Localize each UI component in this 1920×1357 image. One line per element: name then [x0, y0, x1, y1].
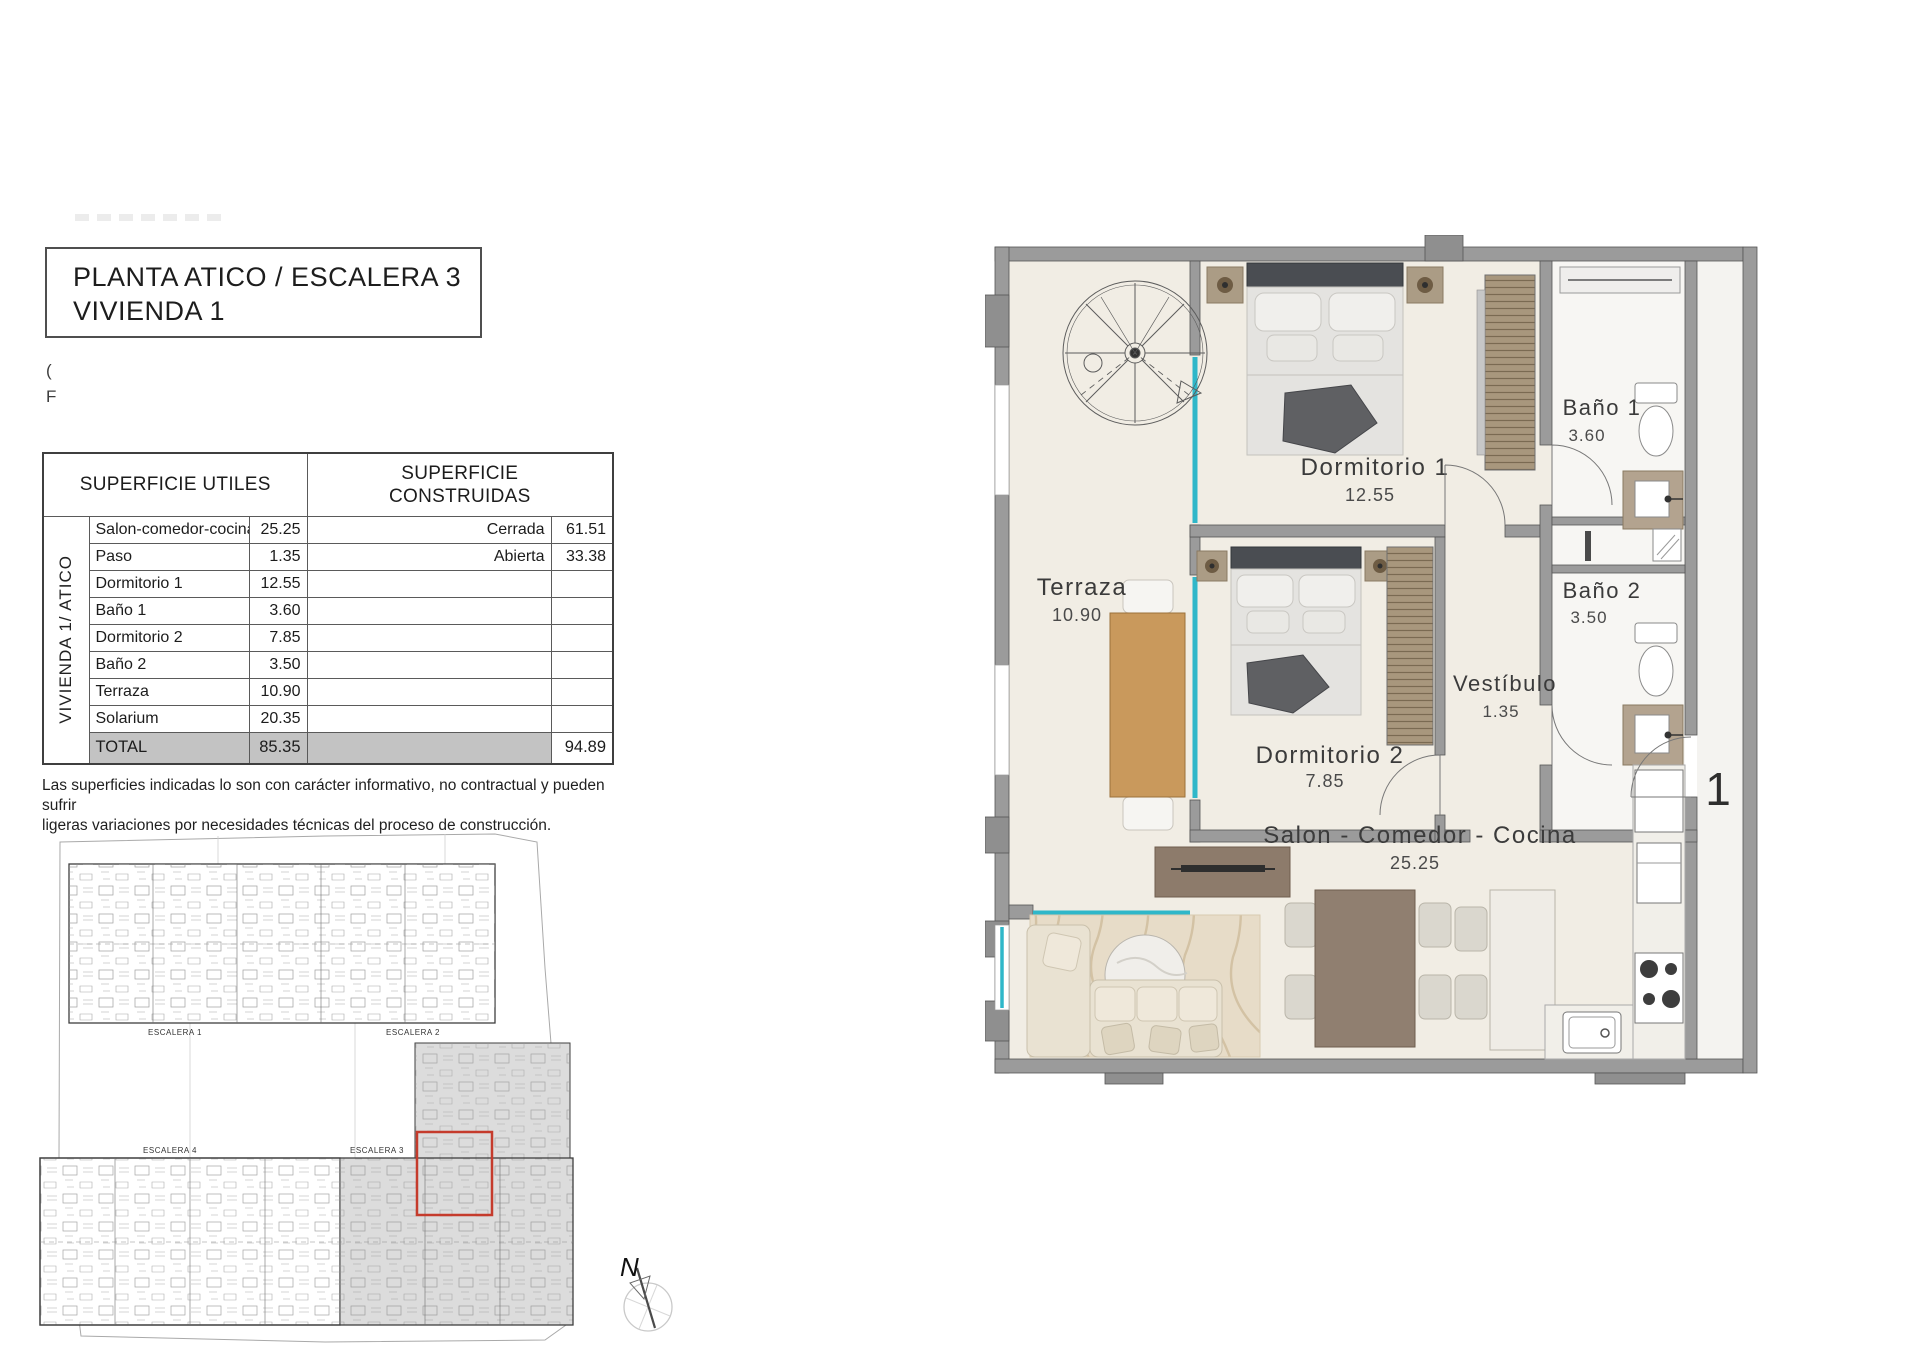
key-plan: ESCALERA 1 ESCALERA 2 ESCALERA 4 ESCALER…	[25, 828, 685, 1357]
room-area-cell: 3.50	[249, 652, 307, 679]
building-top-wing	[69, 864, 495, 1023]
constructed-name-cell	[307, 679, 551, 706]
wardrobe-icon	[1387, 547, 1433, 745]
constructed-value-cell	[551, 652, 613, 679]
table-row: Solarium 20.35	[43, 706, 613, 733]
table-row: Dormitorio 1 12.55	[43, 571, 613, 598]
dormitorio1-area: 12.55	[1345, 485, 1395, 505]
total-label-cell: TOTAL	[89, 733, 249, 764]
bano1-area: 3.60	[1568, 426, 1605, 445]
total-construidas-cell: 94.89	[551, 733, 613, 764]
bano2-area: 3.50	[1570, 608, 1607, 627]
title-block: PLANTA ATICO / ESCALERA 3 VIVIENDA 1	[45, 247, 482, 338]
bano1-label: Baño 1	[1563, 395, 1642, 420]
constructed-name-cell	[307, 706, 551, 733]
constructed-value-cell	[551, 598, 613, 625]
washbasin-icon	[1623, 471, 1683, 529]
room-area-cell: 1.35	[249, 544, 307, 571]
room-name-cell: Baño 1	[89, 598, 249, 625]
room-area-cell: 25.25	[249, 517, 307, 544]
escalera-2-label: ESCALERA 2	[386, 1028, 440, 1037]
constructed-value-cell	[551, 571, 613, 598]
room-area-cell: 7.85	[249, 625, 307, 652]
title-line-2: VIVIENDA 1	[73, 294, 480, 328]
escalera-3-label: ESCALERA 3	[350, 1146, 404, 1155]
oven-tower-icon	[1635, 770, 1683, 832]
constructed-value-cell	[551, 625, 613, 652]
total-utiles-cell: 85.35	[249, 733, 307, 764]
dormitorio2-label: Dormitorio 2	[1256, 742, 1405, 769]
room-name-cell: Dormitorio 1	[89, 571, 249, 598]
tv-console-icon	[1155, 847, 1290, 897]
table-row: VIVIENDA 1/ ATICO Salon-comedor-cocina 2…	[43, 517, 613, 544]
vestibulo-area: 1.35	[1482, 702, 1519, 721]
washbasin-icon	[1623, 705, 1683, 765]
north-compass: N	[620, 1252, 672, 1331]
room-area-cell: 20.35	[249, 706, 307, 733]
shower-icon	[1560, 267, 1680, 293]
header-construidas: SUPERFICIE CONSTRUIDAS	[307, 453, 613, 517]
room-area-cell: 10.90	[249, 679, 307, 706]
salon-area: 25.25	[1390, 853, 1440, 873]
disclaimer-line-1: Las superficies indicadas lo son con car…	[42, 776, 617, 816]
constructed-name-cell	[307, 598, 551, 625]
north-label: N	[620, 1252, 639, 1282]
constructed-name-cell: Cerrada	[307, 517, 551, 544]
plan-sheet: PLANTA ATICO / ESCALERA 3 VIVIENDA 1 ( F…	[0, 0, 1920, 1357]
table-row: Paso 1.35 Abierta 33.38	[43, 544, 613, 571]
corridor-floor	[1697, 261, 1743, 1059]
disclaimer-text: Las superficies indicadas lo son con car…	[42, 776, 617, 836]
table-row: Terraza 10.90	[43, 679, 613, 706]
faded-text-remnant	[75, 214, 225, 221]
terrace-table-icon	[1110, 580, 1185, 830]
group-label-cell: VIVIENDA 1/ ATICO	[43, 517, 89, 764]
kitchen-sink-icon	[1563, 1012, 1621, 1053]
escalera-1-label: ESCALERA 1	[148, 1028, 202, 1037]
bano2-label: Baño 2	[1563, 578, 1642, 603]
room-name-cell: Paso	[89, 544, 249, 571]
total-spacer-cell	[307, 733, 551, 764]
table-row: Dormitorio 2 7.85	[43, 625, 613, 652]
room-name-cell: Baño 2	[89, 652, 249, 679]
terraza-area: 10.90	[1052, 605, 1102, 625]
constructed-name-cell	[307, 652, 551, 679]
table-row: Baño 1 3.60	[43, 598, 613, 625]
unit-number-label: 1	[1705, 763, 1731, 815]
room-name-cell: Solarium	[89, 706, 249, 733]
table-header-row: SUPERFICIE UTILES SUPERFICIE CONSTRUIDAS	[43, 453, 613, 517]
table-total-row: TOTAL 85.35 94.89	[43, 733, 613, 764]
vestibulo-label: Vestíbulo	[1453, 671, 1557, 696]
room-area-cell: 12.55	[249, 571, 307, 598]
dormitorio2-area: 7.85	[1305, 771, 1344, 791]
constructed-value-cell: 61.51	[551, 517, 613, 544]
constructed-value-cell	[551, 679, 613, 706]
constructed-value-cell	[551, 706, 613, 733]
title-line-1: PLANTA ATICO / ESCALERA 3	[73, 260, 480, 294]
main-floor-plan: Terraza 10.90 Dorm	[985, 235, 1775, 1085]
wardrobe-icon	[1477, 275, 1535, 470]
room-name-cell: Salon-comedor-cocina	[89, 517, 249, 544]
dormitorio1-label: Dormitorio 1	[1301, 454, 1450, 481]
stove-icon	[1635, 953, 1683, 1023]
header-utiles: SUPERFICIE UTILES	[43, 453, 307, 517]
constructed-value-cell: 33.38	[551, 544, 613, 571]
constructed-name-cell: Abierta	[307, 544, 551, 571]
areas-table: SUPERFICIE UTILES SUPERFICIE CONSTRUIDAS…	[42, 452, 614, 765]
escalera-4-label: ESCALERA 4	[143, 1146, 197, 1155]
room-area-cell: 3.60	[249, 598, 307, 625]
terraza-label: Terraza	[1037, 574, 1128, 601]
salon-label: Salon - Comedor - Cocina	[1263, 822, 1576, 849]
constructed-name-cell	[307, 625, 551, 652]
constructed-name-cell	[307, 571, 551, 598]
group-label: VIVIENDA 1/ ATICO	[56, 555, 76, 724]
stray-char-2: F	[46, 388, 56, 405]
room-name-cell: Terraza	[89, 679, 249, 706]
room-name-cell: Dormitorio 2	[89, 625, 249, 652]
table-row: Baño 2 3.50	[43, 652, 613, 679]
stray-char-1: (	[46, 362, 52, 379]
fridge-icon	[1637, 843, 1681, 903]
